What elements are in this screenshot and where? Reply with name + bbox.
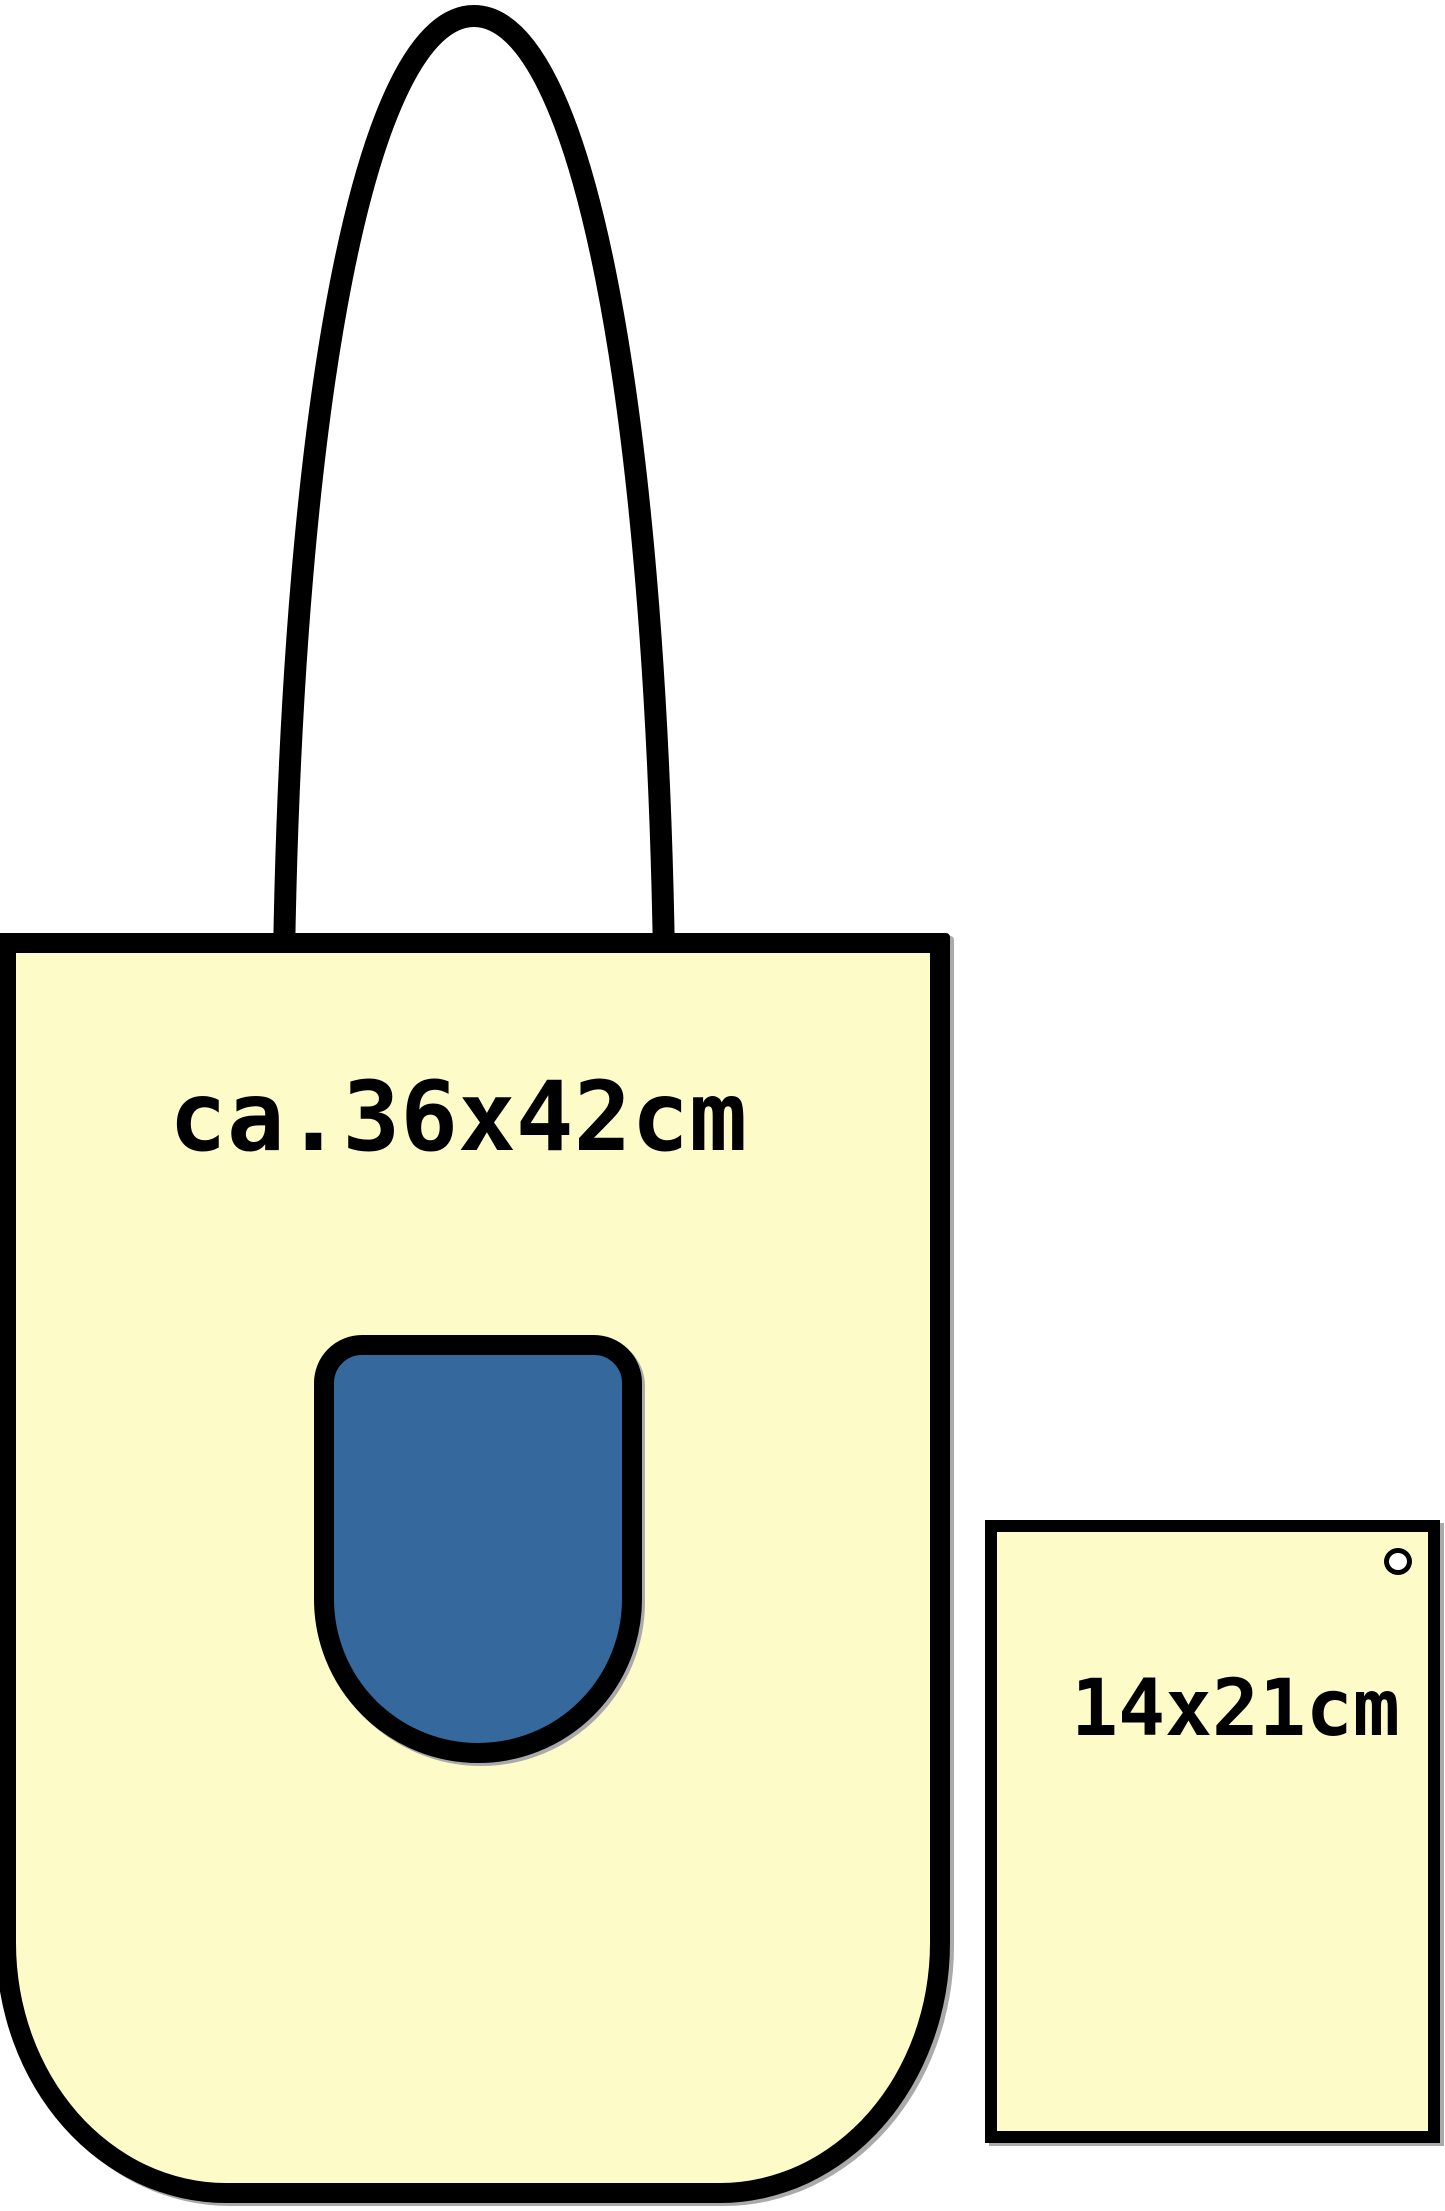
hang-hole-icon [1384, 1548, 1412, 1575]
flyer-card: 14x21cm [985, 1520, 1440, 2143]
bag-handle [0, 0, 950, 960]
bag-size-label: ca.36x42cm [16, 1069, 930, 1165]
bag-handle-path [284, 16, 664, 958]
tote-bag-size-diagram: ca.36x42cm 14x21cm [0, 0, 1445, 2211]
flyer-size-label: 14x21cm [997, 1670, 1428, 1748]
bag-pocket [314, 1335, 642, 1763]
